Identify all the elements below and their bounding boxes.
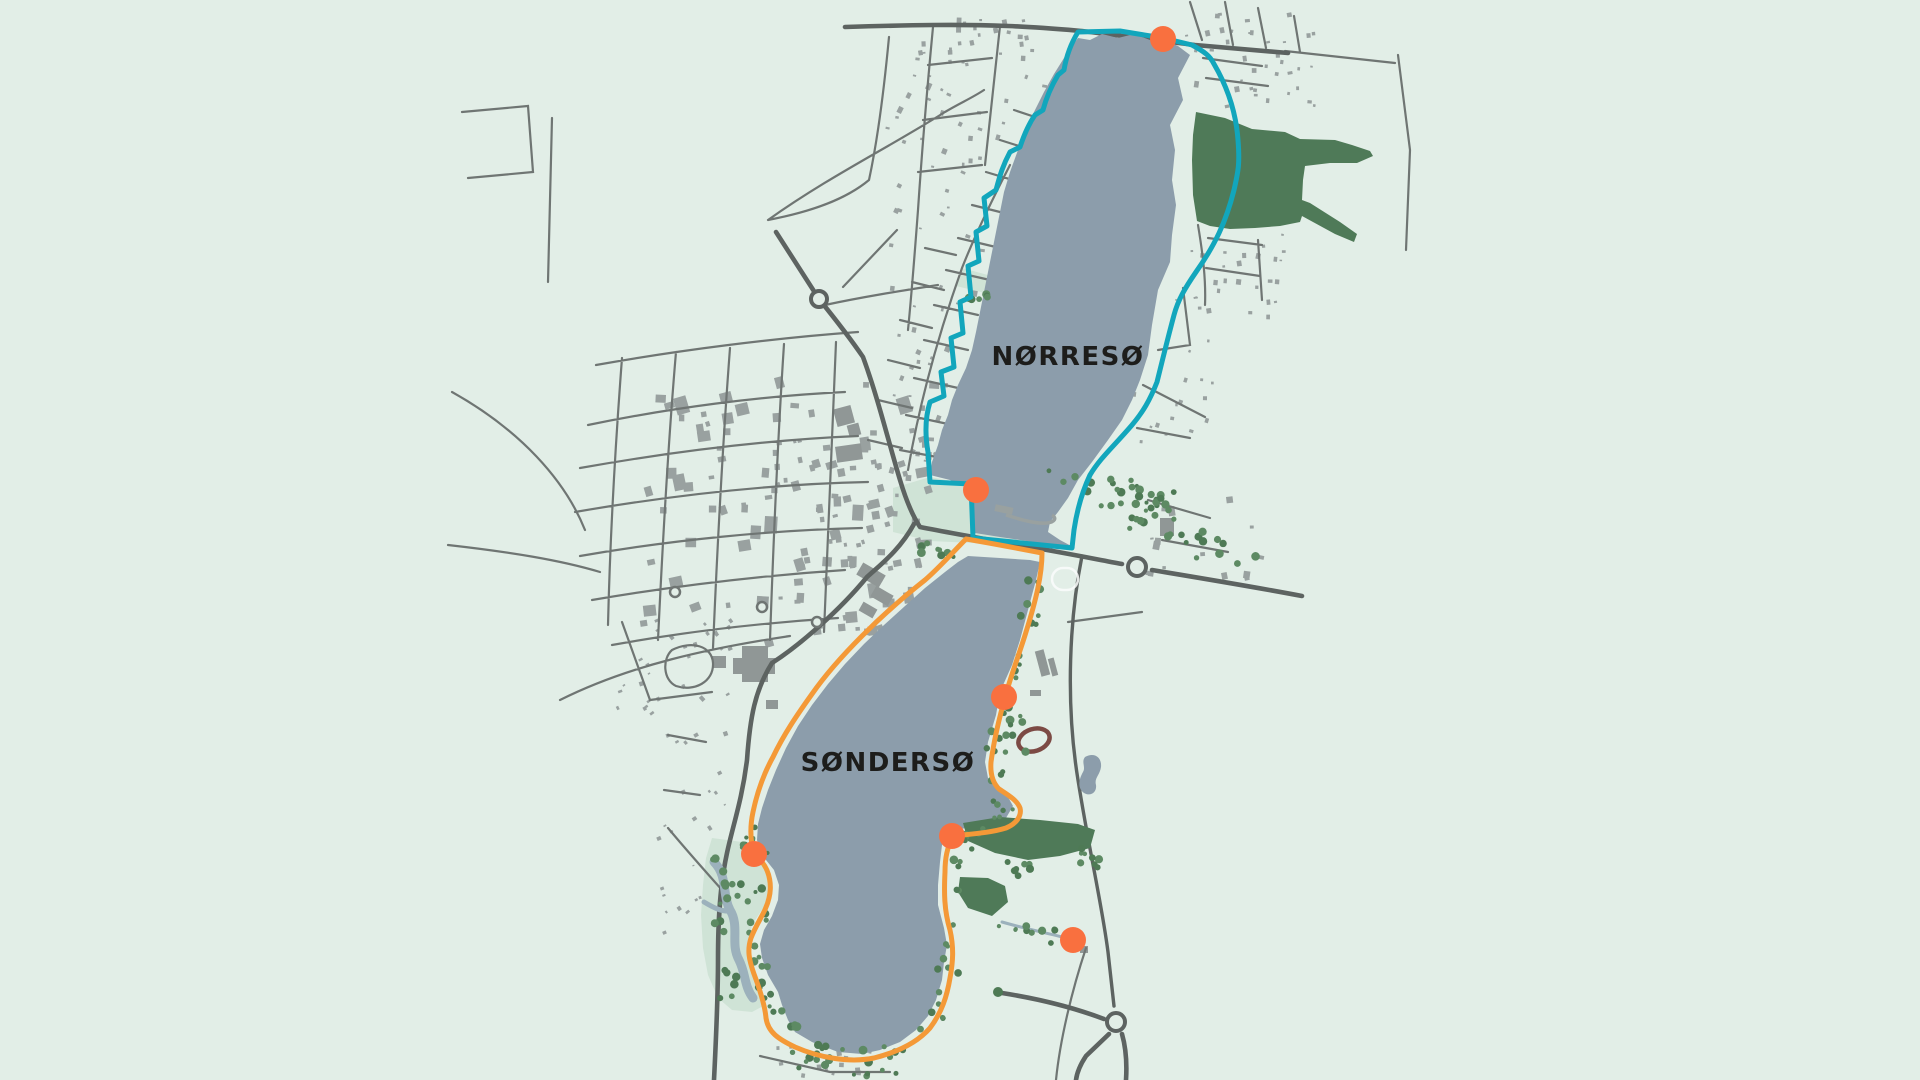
tree-icon [1051,927,1058,934]
building [801,1073,805,1078]
route-marker[interactable] [963,477,989,503]
building [1268,279,1273,283]
tree-icon [790,1050,795,1055]
tree-icon [721,967,728,974]
tree-icon [1095,855,1103,863]
building [1273,257,1277,262]
building [778,596,782,599]
tree-icon [1022,922,1030,930]
tree-icon [1009,732,1016,739]
building [1030,690,1041,696]
building [929,437,934,441]
tree-icon [865,1071,870,1076]
tree-icon [729,881,736,888]
tree-icon [758,884,766,892]
building [1006,30,1011,34]
building [958,41,962,45]
tree-icon [1171,517,1176,522]
building [1234,86,1240,93]
tree-icon [1008,722,1013,727]
building [1170,416,1174,420]
building [1226,39,1230,44]
tree-icon [1013,866,1019,872]
building [895,494,898,497]
building [916,360,920,364]
building [1248,311,1252,314]
tree-icon [852,1073,856,1077]
building [1211,382,1214,385]
tree-icon [1251,552,1260,561]
building [800,548,808,557]
tree-icon [734,893,740,899]
building [1236,279,1242,285]
building [947,206,950,208]
tree-icon [1199,537,1207,545]
tree-icon [730,980,739,989]
tree-icon [711,919,719,927]
building [1191,250,1194,252]
building [1198,307,1202,310]
tree-icon [1127,526,1132,531]
building [837,468,846,477]
building [1206,308,1212,314]
building [1243,571,1251,579]
building [1210,49,1214,52]
building [1252,68,1257,73]
building [1140,440,1143,443]
building [919,565,922,568]
building [1215,14,1220,19]
building [726,602,731,608]
building [1283,41,1286,43]
building [1313,104,1316,107]
tree-icon [880,1068,885,1073]
building [1310,66,1313,68]
tree-icon [940,955,948,963]
building [790,403,799,409]
building [1021,56,1026,62]
building [1213,280,1218,286]
building [655,394,666,402]
tree-icon [814,1041,822,1049]
building [1266,299,1270,305]
tree-icon [917,548,926,557]
tree-icon [1099,503,1104,508]
building [808,409,815,417]
building [1266,98,1270,103]
tree-icon [1132,500,1140,508]
tree-icon [997,924,1001,928]
building [1254,94,1258,97]
tree-icon [1017,612,1025,620]
route-marker[interactable] [741,841,767,867]
tree-icon [1148,505,1155,512]
building [823,445,831,451]
building [889,243,894,247]
building [1306,33,1310,38]
building [978,156,982,160]
tree-icon [1148,491,1155,498]
tree-icon [937,547,942,552]
building [968,136,973,142]
tree-icon [1133,516,1140,523]
route-marker[interactable] [1060,927,1086,953]
tree-icon [1107,476,1114,483]
tree-icon [859,1046,868,1055]
tree-icon [1171,489,1177,495]
map-stage: NØRRESØ SØNDERSØ [0,0,1920,1080]
building [1307,100,1312,104]
building [773,450,777,456]
tree-icon [1135,492,1143,500]
tree-icon [729,993,735,999]
tree-icon [969,846,974,851]
roundabout-icon [1128,558,1146,576]
building [893,511,897,517]
tree-icon [840,1047,845,1052]
building [1226,496,1233,503]
tree-icon [778,1007,785,1014]
building [737,539,751,552]
building [918,50,923,56]
building [1155,538,1161,545]
building [820,517,825,523]
tree-icon [821,1061,829,1069]
tree-icon [1060,479,1066,485]
building [776,1046,779,1050]
building [852,504,864,520]
building [877,549,885,555]
building [1242,56,1247,62]
tree-icon [984,294,991,301]
building [1253,88,1257,92]
tree-icon [1114,487,1120,493]
building [1019,41,1024,47]
building [1200,552,1205,556]
tree-icon [1164,532,1172,540]
tree-icon [768,1004,772,1008]
building [962,163,965,167]
building [701,411,707,417]
tree-icon [744,835,748,839]
building [1004,99,1008,104]
tree-icon [793,1022,802,1031]
building [838,624,846,632]
building [1255,286,1258,289]
building [1203,396,1207,400]
tree-icon [984,745,990,751]
tree-icon [770,1009,776,1015]
building [1296,86,1299,90]
route-marker[interactable] [991,684,1017,710]
tree-icon [1184,540,1189,545]
tree-icon [1038,927,1046,935]
tree-icon [1015,872,1022,879]
tree-icon [940,1015,945,1020]
tree-icon [804,1059,809,1064]
building [871,511,880,520]
building [741,502,746,509]
building [1194,81,1200,88]
tree-icon [1078,845,1085,852]
building [863,382,869,388]
tree-icon [722,882,730,890]
tree-icon [767,991,774,998]
tree-icon [1145,501,1149,505]
tree-icon [1199,528,1207,536]
tree-icon [954,887,960,893]
tree-icon [1000,808,1005,813]
tree-icon [745,898,751,904]
building [1242,253,1246,258]
building [908,395,911,397]
tree-icon [1023,600,1031,608]
tree-icon [1005,859,1011,865]
tree-icon [1014,927,1018,931]
building [1280,60,1284,64]
road-end-tree-icon [993,987,1003,997]
building [1162,566,1165,569]
tree-icon [1000,769,1005,774]
building [804,557,811,564]
lake-label-sonderso: SØNDERSØ [801,748,976,778]
building [796,593,804,603]
tree-icon [893,1071,898,1076]
building [1222,265,1225,268]
building [1312,32,1316,36]
building [1248,32,1251,34]
building [915,57,920,60]
building [1250,525,1254,528]
tree-icon [945,944,950,949]
building [835,536,841,542]
building [709,506,716,513]
tree-icon [1178,532,1185,539]
building [1287,92,1290,96]
building [855,627,860,631]
building [1236,260,1242,266]
building [761,468,769,478]
roundabout-icon [670,587,680,597]
roundabout-icon [812,617,822,627]
tree-icon [764,918,769,923]
building [1024,35,1029,40]
building [1018,35,1023,40]
building [1280,260,1283,262]
tree-icon [1151,512,1158,519]
building [831,493,838,498]
tree-icon [928,1009,936,1017]
tree-icon [1018,718,1026,726]
tree-icon [992,816,996,820]
tree-icon [1214,536,1221,543]
building [1200,378,1203,381]
building [1022,19,1026,22]
building [784,478,788,483]
building [968,158,972,163]
tree-icon [1021,747,1029,755]
tree-icon [1118,500,1124,506]
tree-icon [720,928,727,935]
tree-icon [753,890,757,894]
tree-icon [747,919,755,927]
building [1030,49,1034,52]
building [1217,289,1221,294]
tree-icon [1026,865,1034,873]
tree-icon [796,1065,801,1070]
route-marker[interactable] [939,823,965,849]
tree-icon [1071,473,1078,480]
tree-icon [1002,731,1010,739]
tree-icon [937,551,945,559]
tree-icon [936,989,942,995]
building [850,466,856,471]
roundabout-icon [811,291,827,307]
building [1275,279,1280,284]
building [965,63,969,67]
building [829,539,833,544]
tree-icon [751,942,758,949]
tree-icon [954,969,962,977]
tree-icon [955,863,961,869]
building [816,507,821,512]
tree-icon [934,965,941,972]
tree-icon [1003,749,1008,754]
building [1282,250,1286,253]
tree-icon [717,995,723,1001]
building [1266,315,1270,320]
building [905,475,911,481]
tree-icon [882,1044,887,1049]
tree-icon [1215,549,1224,558]
tree-icon [711,854,719,862]
tree-icon [1129,484,1136,491]
building [1275,72,1279,76]
tree-icon [1107,502,1114,509]
tree-icon [1128,478,1133,483]
building [999,52,1002,54]
tree-icon [1011,807,1015,811]
roundabout-icon [757,602,767,612]
tree-icon [1048,940,1054,946]
building [712,656,726,668]
tree-icon [1144,509,1148,513]
building [978,33,981,37]
building [897,334,901,337]
building [921,41,925,46]
tree-icon [758,963,765,970]
tree-icon [1033,622,1038,627]
tree-icon [1013,675,1018,680]
building [1287,12,1293,17]
building [1297,67,1300,71]
tree-icon [1018,714,1022,718]
building [1223,251,1226,254]
tree-icon [1047,468,1052,473]
tree-icon [737,880,745,888]
building [890,286,895,291]
building [1264,64,1267,68]
tree-icon [1157,495,1164,502]
building [640,620,648,627]
building [949,47,952,51]
tree-icon [822,1042,830,1050]
map-canvas: NØRRESØ SØNDERSØ [0,0,1920,1080]
tree-icon [1094,864,1100,870]
building [794,578,803,586]
tree-icon [1234,560,1241,567]
tree-icon [1089,854,1096,861]
tree-icon [1036,613,1041,618]
tree-icon [997,815,1002,820]
building [841,559,849,567]
building [643,604,657,616]
building [1207,339,1210,342]
building [696,423,704,433]
tree-icon [732,973,740,981]
tree-icon [994,801,1001,808]
building [1245,19,1250,23]
building [722,412,734,425]
building [870,430,877,435]
route-marker[interactable] [1150,26,1176,52]
building [957,18,962,24]
tree-icon [1194,555,1199,560]
building [839,1063,844,1068]
tree-icon [1024,576,1032,584]
tree-icon [757,955,762,960]
tree-icon [718,901,722,905]
building [849,561,855,569]
tree-icon [976,296,982,302]
building [679,415,684,422]
roundabout-icon [1107,1013,1125,1031]
building [766,700,778,709]
tree-icon [719,867,727,875]
building [979,19,982,21]
tree-icon [917,1026,924,1033]
building [1223,278,1227,283]
tree-icon [723,894,731,902]
tree-icon [950,855,959,864]
building [861,443,868,452]
tree-icon [1077,859,1084,866]
lake-label-norreso: NØRRESØ [992,342,1145,372]
